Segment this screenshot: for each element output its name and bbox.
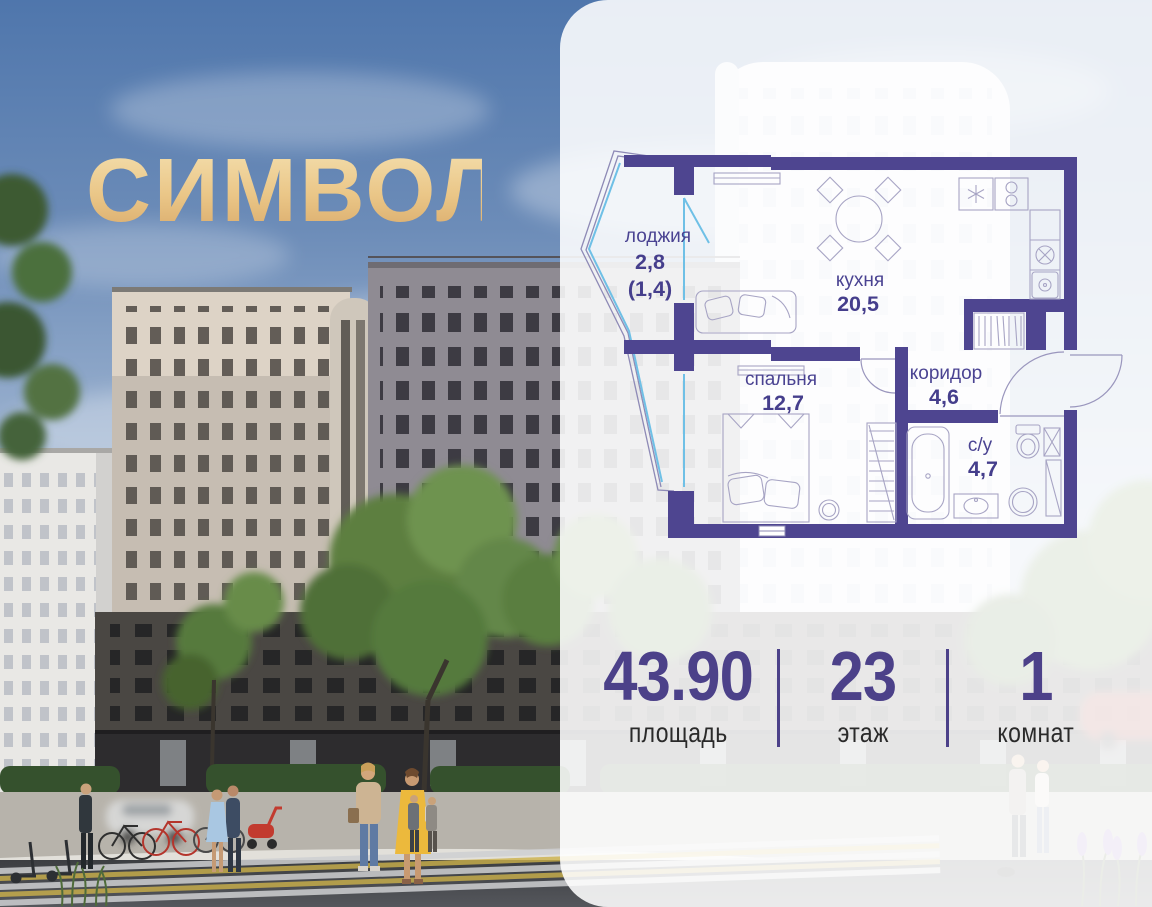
stat-rooms: 1 комнат (949, 646, 1123, 749)
stat-floor: 23 этаж (780, 646, 946, 749)
round-washbasin-icon (1009, 488, 1037, 516)
room-label-loggia: лоджия (625, 226, 691, 247)
stove-icon (995, 178, 1028, 210)
room-area-bedroom: 12,7 (762, 391, 804, 415)
room-label-corridor: коридор (910, 363, 983, 384)
shelving-icon (867, 423, 896, 522)
area-label: площадь (629, 717, 728, 749)
room-area-bathroom: 4,7 (968, 457, 998, 481)
wardrobe-hangers-icon (974, 313, 1024, 349)
bed-icon (723, 414, 809, 522)
kitchen-sideboard-icon (714, 173, 780, 184)
pouf-icon (819, 500, 839, 520)
room-area-kitchen: 20,5 (837, 292, 879, 316)
stat-area: 43.90 площадь (580, 646, 777, 749)
toilet-icon (1016, 425, 1040, 458)
washer-icon (1032, 272, 1058, 298)
floor-value: 23 (830, 646, 897, 708)
bathroom-door (1000, 352, 1064, 416)
listing-screenshot: СИМВОЛ (0, 0, 1152, 907)
dining-table-icon (817, 177, 900, 260)
pedestrian-left (79, 784, 93, 870)
floor-plan: лоджия 2,8 (1,4) кухня 20,5 спальня 12,7… (576, 146, 1136, 576)
room-label-bedroom: спальня (745, 369, 817, 390)
fridge-icon (959, 178, 993, 210)
kitchen-sink-icon (1036, 246, 1054, 264)
bedroom-door (861, 359, 895, 393)
bathtub-icon (907, 427, 949, 519)
rooms-value: 1 (1019, 646, 1052, 708)
stats-row: 43.90 площадь 23 этаж 1 комнат (580, 646, 1123, 749)
room-area-loggia: 2,8 (635, 250, 665, 274)
loggia-outline (581, 151, 677, 491)
vent-shaft (1044, 428, 1061, 516)
washbasin-cabinet-icon (954, 494, 998, 518)
apartment-card[interactable]: лоджия 2,8 (1,4) кухня 20,5 спальня 12,7… (560, 0, 1152, 907)
area-value: 43.90 (604, 646, 754, 708)
rooms-label: комнат (998, 717, 1075, 749)
room-area-corridor: 4,6 (929, 385, 959, 409)
sofa-icon (696, 291, 796, 333)
room-label-bathroom: с/у (968, 435, 993, 456)
development-logo: СИМВОЛ (86, 146, 482, 236)
room-area-loggia-reduced: (1,4) (628, 277, 672, 301)
entrance-door (1070, 355, 1122, 407)
room-label-kitchen: кухня (836, 270, 884, 291)
bottom-window (759, 526, 785, 536)
floor-label: этаж (837, 717, 888, 749)
